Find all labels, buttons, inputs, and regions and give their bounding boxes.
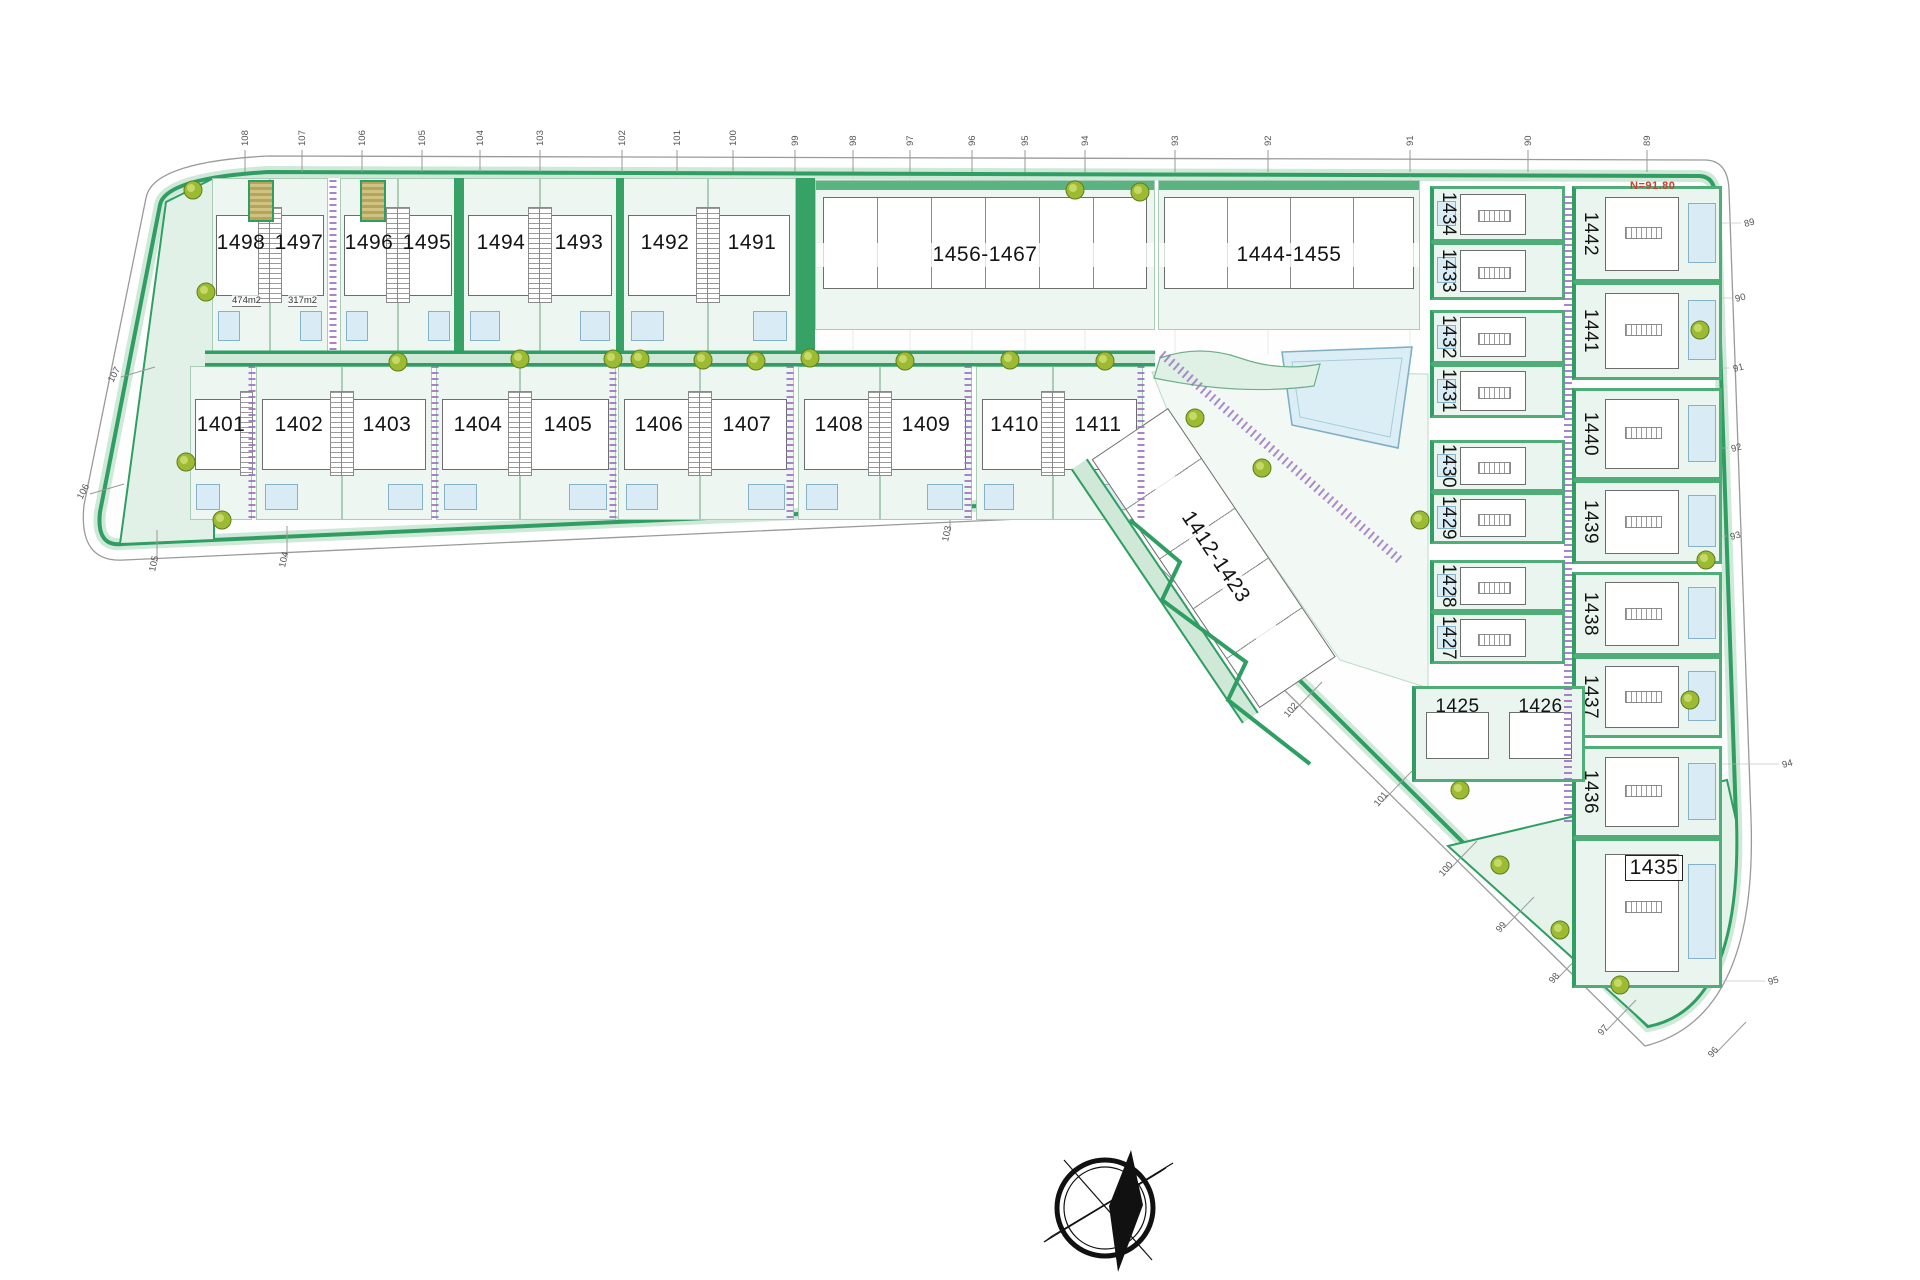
plot-number: 1429 [1437, 496, 1459, 540]
plot-1436: 1436 [1572, 746, 1722, 838]
plot-number: 1425 [1416, 696, 1499, 718]
private-pool [753, 311, 787, 340]
level-note: N=91.80 [1630, 180, 1675, 192]
stair-core [397, 207, 410, 303]
plot-number: 1494 [463, 231, 539, 255]
inter-row-green-path [205, 352, 1155, 365]
plot-1402: 1402 [256, 366, 342, 520]
plot-1407: 1407 [700, 366, 794, 520]
stair-core [1625, 785, 1662, 797]
private-pool [470, 311, 500, 340]
plot-1440: 1440 [1572, 388, 1722, 480]
stair-core [1478, 210, 1511, 222]
plot-number: 1442 [1579, 212, 1601, 256]
plot-number: 1498 [213, 231, 269, 255]
stair-core [1478, 462, 1511, 474]
plot-1491: 1491 [708, 178, 796, 352]
area-label: 317m2 [288, 295, 317, 307]
plot-1425: 1425 [1416, 689, 1499, 779]
private-pool [569, 484, 607, 510]
private-pool [580, 311, 610, 340]
villa-building [1426, 712, 1489, 759]
stair-core [539, 207, 552, 303]
private-pool [1688, 671, 1717, 721]
plot-1405: 1405 [520, 366, 616, 520]
plot-1438: 1438 [1572, 572, 1722, 656]
plot-number: 1402 [257, 413, 341, 437]
stair-core [1478, 582, 1511, 594]
plot-pair-1425-1426: 14251426 [1412, 686, 1585, 782]
green-divider [796, 178, 815, 352]
stair-core [1625, 516, 1662, 528]
stair-core [1478, 514, 1511, 526]
private-pool [444, 484, 477, 510]
private-pool [1688, 405, 1717, 462]
private-pool [1688, 864, 1717, 959]
plot-1435: 1435 [1572, 838, 1722, 988]
plot-number: 1440 [1579, 412, 1601, 456]
plot-1431: 1431 [1430, 364, 1565, 418]
private-pool [748, 484, 785, 510]
pergola [248, 180, 274, 222]
plot-number: 1404 [437, 413, 519, 437]
private-pool [196, 484, 220, 510]
villa-building [468, 215, 535, 296]
plot-number: 1435 [1625, 855, 1684, 881]
stair-core [1625, 227, 1662, 239]
plot-1410: 1410 [976, 366, 1053, 520]
plots-layer: 1498149714961495149414931492149114011402… [0, 0, 1920, 1280]
plot-1433: 1433 [1430, 242, 1565, 300]
plot-1441: 1441 [1572, 282, 1722, 380]
stair-core [1478, 267, 1511, 279]
plot-number: 1401 [191, 413, 251, 437]
stair-core [1625, 691, 1662, 703]
block-number: 1444-1455 [1159, 243, 1419, 267]
plot-1434: 1434 [1430, 186, 1565, 242]
plot-1492: 1492 [622, 178, 708, 352]
plot-number: 1428 [1437, 564, 1459, 608]
villa-building [628, 215, 702, 296]
stair-core [1625, 427, 1662, 439]
block-1412-1423: 1412-1423 [1092, 408, 1336, 708]
plot-1428: 1428 [1430, 560, 1565, 612]
plot-1495: 1495 [398, 178, 456, 352]
stair-core [1478, 387, 1511, 399]
private-pool [1688, 763, 1717, 820]
plot-1408: 1408 [798, 366, 880, 520]
plot-number: 1492 [623, 231, 707, 255]
plot-1494: 1494 [462, 178, 540, 352]
plot-1409: 1409 [880, 366, 972, 520]
plot-number: 1403 [343, 413, 431, 437]
block-1456-1467: 1456-1467 [815, 180, 1155, 330]
plot-1406: 1406 [618, 366, 700, 520]
plot-number: 1406 [619, 413, 699, 437]
private-pool [1688, 495, 1717, 546]
villa-building [714, 215, 790, 296]
private-pool [388, 484, 423, 510]
plot-number: 1405 [521, 413, 615, 437]
plot-number: 1410 [977, 413, 1052, 437]
plot-number: 1426 [1499, 696, 1582, 718]
stair-core [1625, 901, 1662, 913]
plot-1404: 1404 [436, 366, 520, 520]
plot-number: 1407 [701, 413, 793, 437]
plot-number: 1493 [541, 231, 617, 255]
plot-number: 1438 [1579, 592, 1601, 636]
block-1444-1455: 1444-1455 [1158, 180, 1420, 330]
private-pool [300, 311, 322, 340]
plot-number: 1495 [399, 231, 455, 255]
plot-1493: 1493 [540, 178, 618, 352]
private-pool [984, 484, 1014, 510]
villa-building [546, 215, 613, 296]
plot-1497: 1497 [270, 178, 328, 352]
private-pool [1688, 300, 1717, 361]
plot-1429: 1429 [1430, 492, 1565, 544]
block-hedge [816, 181, 1154, 190]
stair-core [1625, 608, 1662, 620]
plot-number: 1439 [1579, 500, 1601, 544]
plot-number: 1441 [1579, 309, 1601, 353]
block-number: 1456-1467 [816, 243, 1154, 267]
private-pool [346, 311, 368, 340]
plot-1426: 1426 [1499, 689, 1582, 779]
plot-number: 1497 [271, 231, 327, 255]
plot-number: 1496 [341, 231, 397, 255]
plot-1437: 1437 [1572, 656, 1722, 738]
plot-number: 1427 [1437, 616, 1459, 660]
plot-number: 1432 [1437, 315, 1459, 359]
plot-number: 1434 [1437, 192, 1459, 236]
private-pool [631, 311, 665, 340]
plot-1432: 1432 [1430, 310, 1565, 364]
private-pool [1688, 587, 1717, 638]
private-pool [265, 484, 299, 510]
plot-1442: 1442 [1572, 186, 1722, 282]
green-divider [454, 178, 464, 352]
plot-number: 1409 [881, 413, 971, 437]
plot-1403: 1403 [342, 366, 432, 520]
green-divider [616, 178, 624, 352]
block-hedge [1159, 181, 1419, 190]
plot-number: 1408 [799, 413, 879, 437]
private-pool [218, 311, 240, 340]
private-pool [626, 484, 658, 510]
site-plan-canvas: 1081071061051041031021011009998979695949… [0, 0, 1920, 1280]
plot-1439: 1439 [1572, 480, 1722, 564]
area-label: 474m2 [232, 295, 261, 307]
stair-core [1625, 324, 1662, 336]
stair-core [707, 207, 720, 303]
plot-number: 1430 [1437, 444, 1459, 488]
plot-number: 1433 [1437, 249, 1459, 293]
plot-1401: 1401 [190, 366, 252, 520]
private-pool [927, 484, 963, 510]
stair-core [1478, 634, 1511, 646]
plot-1427: 1427 [1430, 612, 1565, 664]
private-pool [428, 311, 450, 340]
private-pool [1688, 203, 1717, 262]
stair-core [1478, 333, 1511, 345]
private-pool [806, 484, 838, 510]
plot-number: 1491 [709, 231, 795, 255]
pergola [360, 180, 386, 222]
plot-1430: 1430 [1430, 440, 1565, 492]
plot-number: 1431 [1437, 369, 1459, 413]
villa-building [1509, 712, 1572, 759]
